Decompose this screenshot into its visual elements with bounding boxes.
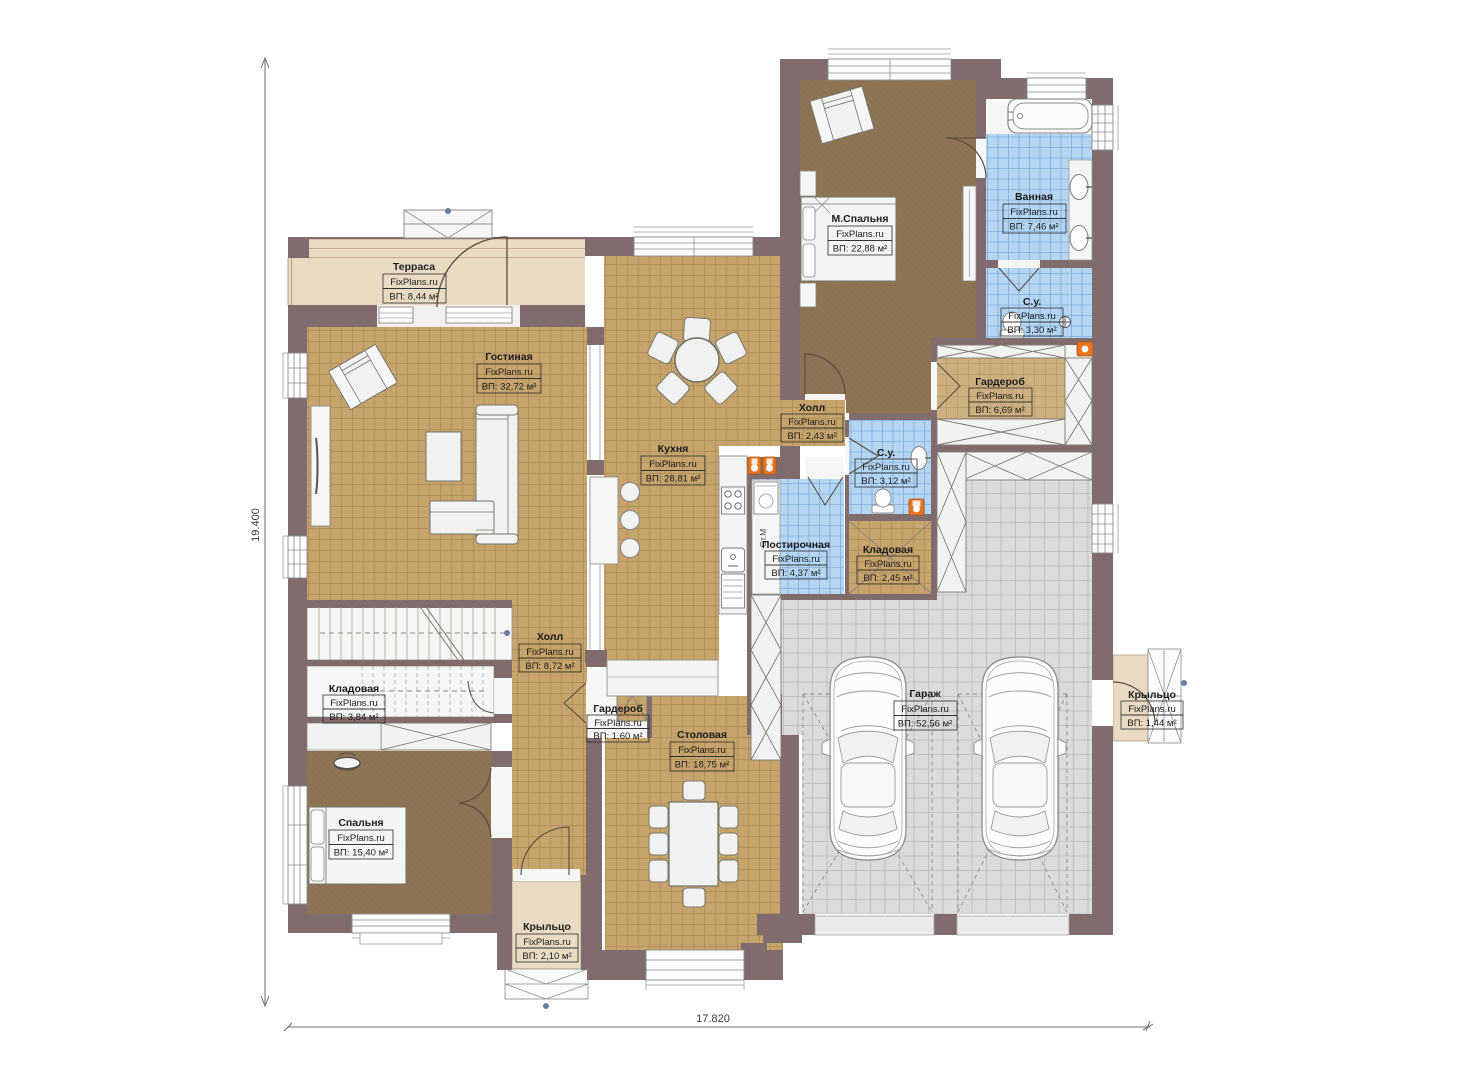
- svg-text:FixPlans.ru: FixPlans.ru: [772, 554, 820, 565]
- svg-text:Постирочная: Постирочная: [762, 539, 830, 551]
- svg-text:FixPlans.ru: FixPlans.ru: [864, 559, 912, 570]
- svg-text:FixPlans.ru: FixPlans.ru: [337, 833, 385, 844]
- svg-text:Гардероб: Гардероб: [593, 703, 643, 715]
- svg-text:FixPlans.ru: FixPlans.ru: [649, 459, 697, 470]
- svg-text:ВП: 15,40 м²: ВП: 15,40 м²: [334, 848, 389, 859]
- svg-text:FixPlans.ru: FixPlans.ru: [485, 367, 533, 378]
- svg-text:FixPlans.ru: FixPlans.ru: [526, 647, 574, 658]
- svg-text:Столовая: Столовая: [677, 729, 727, 741]
- svg-text:FixPlans.ru: FixPlans.ru: [390, 277, 438, 288]
- svg-text:FixPlans.ru: FixPlans.ru: [1010, 207, 1058, 218]
- svg-text:Кладовая: Кладовая: [329, 683, 379, 695]
- svg-text:Кухня: Кухня: [658, 443, 689, 455]
- svg-text:Гараж: Гараж: [909, 688, 941, 700]
- svg-text:ВП: 22,88 м²: ВП: 22,88 м²: [833, 244, 888, 255]
- svg-text:ВП: 7,46 м²: ВП: 7,46 м²: [1009, 222, 1058, 233]
- svg-text:19.400: 19.400: [250, 508, 262, 542]
- svg-text:ВП: 18,75 м²: ВП: 18,75 м²: [675, 760, 730, 771]
- svg-text:FixPlans.ru: FixPlans.ru: [862, 462, 910, 473]
- svg-text:ВП: 2,43 м²: ВП: 2,43 м²: [787, 431, 836, 442]
- svg-text:ВП: 32,72 м²: ВП: 32,72 м²: [482, 382, 537, 393]
- svg-text:FixPlans.ru: FixPlans.ru: [788, 417, 836, 428]
- svg-text:ВП: 28,81 м²: ВП: 28,81 м²: [646, 474, 701, 485]
- svg-text:FixPlans.ru: FixPlans.ru: [523, 937, 571, 948]
- svg-text:Кладовая: Кладовая: [863, 544, 913, 556]
- svg-text:ВП: 2,45 м²: ВП: 2,45 м²: [863, 573, 912, 584]
- svg-text:М.Спальня: М.Спальня: [831, 213, 888, 225]
- svg-text:ВП: 3,84 м²: ВП: 3,84 м²: [329, 712, 378, 723]
- svg-text:ВП: 3,12 м²: ВП: 3,12 м²: [861, 476, 910, 487]
- svg-text:FixPlans.ru: FixPlans.ru: [1008, 311, 1056, 322]
- svg-text:FixPlans.ru: FixPlans.ru: [836, 229, 884, 240]
- svg-text:ВП: 1,60 м²: ВП: 1,60 м²: [593, 731, 642, 742]
- svg-text:ВП: 4,37 м²: ВП: 4,37 м²: [771, 568, 820, 579]
- svg-text:ВП: 3,30 м²: ВП: 3,30 м²: [1007, 325, 1056, 336]
- svg-text:ВП: 6,69 м²: ВП: 6,69 м²: [975, 405, 1024, 416]
- svg-text:Терраса: Терраса: [393, 261, 435, 273]
- svg-text:С.у.: С.у.: [1023, 296, 1041, 308]
- svg-text:17.820: 17.820: [696, 1013, 730, 1025]
- svg-text:FixPlans.ru: FixPlans.ru: [901, 704, 949, 715]
- svg-text:Гостиная: Гостиная: [485, 351, 532, 363]
- svg-text:ВП: 1,44 м²: ВП: 1,44 м²: [1127, 718, 1176, 729]
- svg-text:Холл: Холл: [537, 631, 563, 643]
- svg-text:Крыльцо: Крыльцо: [1128, 689, 1176, 701]
- svg-text:Крыльцо: Крыльцо: [523, 921, 571, 933]
- svg-text:ВП: 2,10 м²: ВП: 2,10 м²: [522, 951, 571, 962]
- svg-text:FixPlans.ru: FixPlans.ru: [1128, 704, 1176, 715]
- svg-text:ВП: 52,56 м²: ВП: 52,56 м²: [898, 719, 953, 730]
- svg-text:ВП: 8,72 м²: ВП: 8,72 м²: [525, 661, 574, 672]
- svg-text:Ванная: Ванная: [1015, 191, 1053, 203]
- svg-text:FixPlans.ru: FixPlans.ru: [678, 745, 726, 756]
- svg-text:FixPlans.ru: FixPlans.ru: [594, 718, 642, 729]
- svg-text:Спальня: Спальня: [338, 817, 383, 829]
- svg-text:FixPlans.ru: FixPlans.ru: [330, 698, 378, 709]
- svg-text:С.у.: С.у.: [877, 447, 895, 459]
- svg-text:FixPlans.ru: FixPlans.ru: [976, 391, 1024, 402]
- svg-text:Холл: Холл: [799, 402, 825, 414]
- svg-text:ВП: 8,44 м²: ВП: 8,44 м²: [389, 292, 438, 303]
- svg-text:Гардероб: Гардероб: [975, 376, 1025, 388]
